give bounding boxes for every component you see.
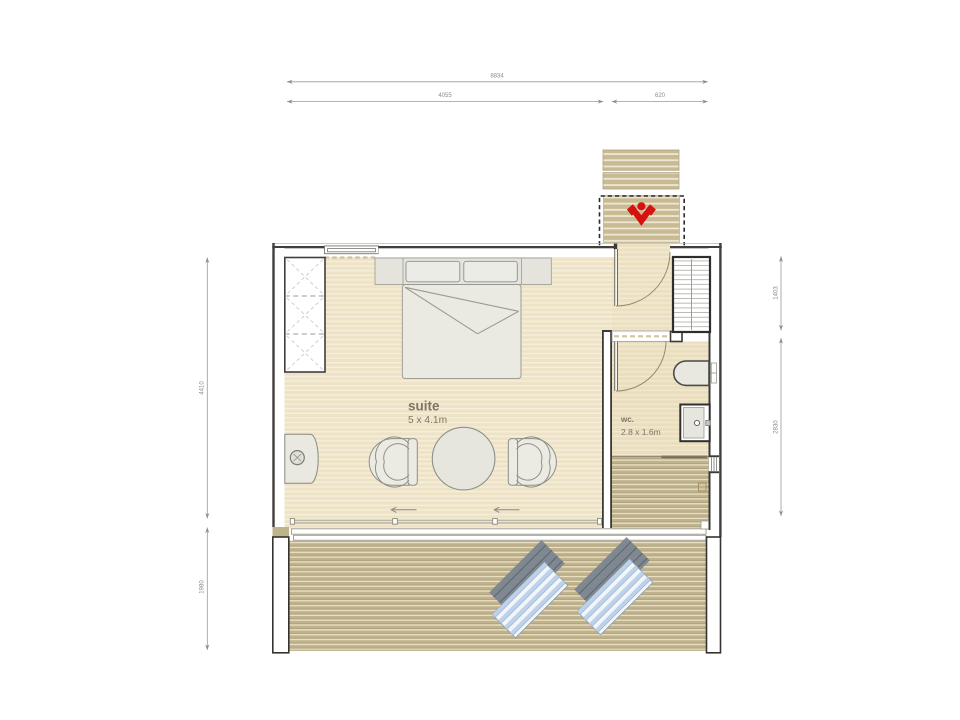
svg-text:1403: 1403 — [774, 286, 780, 300]
svg-text:620: 620 — [655, 93, 666, 99]
svg-text:suite: suite — [408, 399, 440, 414]
svg-text:1980: 1980 — [200, 580, 206, 594]
svg-text:2.8 x 1.6m: 2.8 x 1.6m — [621, 427, 661, 437]
svg-text:8834: 8834 — [490, 74, 504, 80]
svg-text:5 x 4.1m: 5 x 4.1m — [408, 415, 447, 426]
svg-text:4055: 4055 — [438, 93, 452, 99]
svg-text:4410: 4410 — [200, 381, 206, 395]
svg-text:wc.: wc. — [620, 415, 634, 424]
svg-text:2830: 2830 — [774, 420, 780, 434]
